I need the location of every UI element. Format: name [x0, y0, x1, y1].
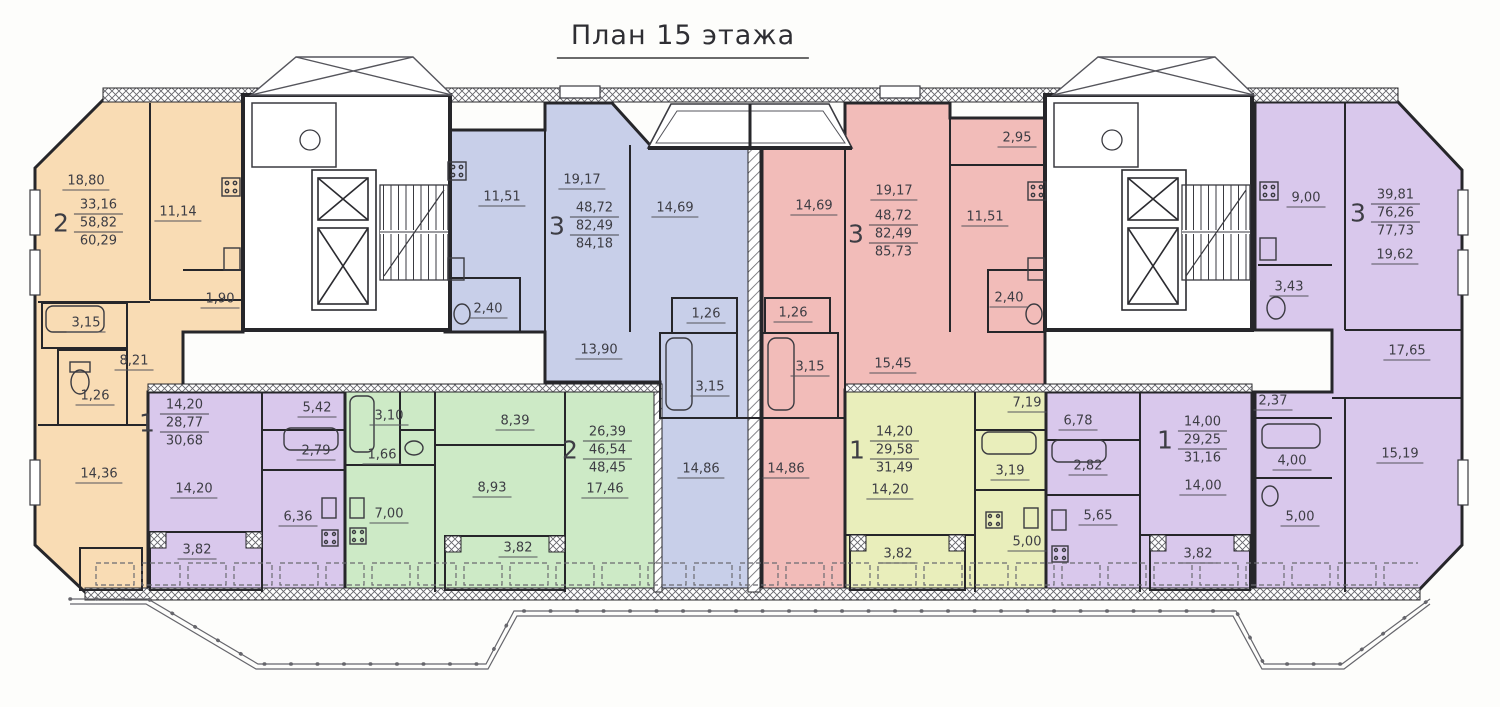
apartment-type: 3 [1350, 201, 1366, 226]
room-area-label: 2,37 [1254, 394, 1293, 411]
room-area-label: 11,51 [961, 210, 1008, 227]
total-area: 48,45 [583, 460, 632, 477]
room-area-label: 3,15 [691, 380, 730, 397]
room-area-label: 3,19 [991, 464, 1030, 481]
living-area: 14,20 [160, 397, 209, 415]
total-area: 77,73 [1371, 223, 1420, 240]
apartment-type: 1 [849, 438, 865, 463]
room-area-label: 19,17 [870, 184, 917, 201]
apartment-area: 46,54 [583, 442, 632, 460]
room-area-label: 18,80 [62, 174, 109, 191]
apartment-summary: 3 39,81 76,26 77,73 [1350, 187, 1420, 240]
room-area-label: 8,93 [473, 481, 512, 498]
living-area: 39,81 [1371, 187, 1420, 205]
total-area: 85,73 [869, 244, 918, 261]
room-area-label: 8,21 [115, 354, 154, 371]
room-area-label: 5,42 [298, 401, 337, 418]
podium-outline [70, 599, 1430, 669]
bottom-glazing-band [92, 558, 1418, 586]
apartment-summary: 2 33,16 58,82 60,29 [53, 197, 123, 250]
apartment-area: 82,49 [570, 218, 619, 236]
room-area-label: 3,15 [67, 316, 106, 333]
total-area: 60,29 [74, 233, 123, 250]
apartment-area: 82,49 [869, 226, 918, 244]
center-bay-balcony [648, 104, 852, 148]
room-area-label: 2,95 [998, 131, 1037, 148]
room-area-label: 3,82 [178, 543, 217, 560]
apartment-summary: 3 48,72 82,49 84,18 [549, 200, 619, 253]
apartment-type: 2 [562, 438, 578, 463]
room-area-label: 3,10 [370, 409, 409, 426]
apartment-summary: 1 14,20 29,58 31,49 [849, 424, 919, 477]
room-area-label: 5,65 [1079, 509, 1118, 526]
room-area-label: 2,40 [990, 291, 1029, 308]
room-area-label: 19,62 [1371, 248, 1418, 265]
stair-core-left [243, 95, 450, 330]
living-area: 26,39 [583, 424, 632, 442]
apartment-type: 2 [53, 211, 69, 236]
floor-plan: План 15 этажа 18,80 2 33,16 58,82 60,29 … [0, 0, 1500, 707]
total-area: 31,16 [1178, 450, 1227, 467]
room-area-label: 7,00 [370, 507, 409, 524]
room-area-label: 2,82 [1069, 459, 1108, 476]
room-area-label: 3,82 [1179, 547, 1218, 564]
total-area: 84,18 [570, 236, 619, 253]
stairs-icon [1182, 185, 1250, 280]
core-roof-left [251, 57, 452, 95]
room-area-label: 5,00 [1008, 535, 1047, 552]
room-area-label: 1,66 [363, 448, 402, 465]
room-area-label: 7,19 [1008, 396, 1047, 413]
room-area-label: 15,45 [869, 357, 916, 374]
room-area-label: 8,39 [496, 414, 535, 431]
floor-plan-canvas [0, 0, 1500, 707]
room-area-label: 3,43 [1270, 280, 1309, 297]
living-area: 48,72 [570, 200, 619, 218]
apartment-area: 29,58 [870, 442, 919, 460]
room-area-label: 1,26 [687, 307, 726, 324]
apartment-type: 1 [1157, 428, 1173, 453]
apartment-summary: 1 14,00 29,25 31,16 [1157, 414, 1227, 467]
room-area-label: 14,86 [762, 462, 809, 479]
room-area-label: 14,20 [170, 482, 217, 499]
apartment-type: 1 [139, 411, 155, 436]
room-area-label: 3,15 [791, 360, 830, 377]
room-area-label: 14,69 [790, 199, 837, 216]
living-area: 48,72 [869, 208, 918, 226]
total-area: 30,68 [160, 433, 209, 450]
room-area-label: 14,69 [651, 201, 698, 218]
room-area-label: 14,20 [866, 483, 913, 500]
room-area-label: 11,51 [478, 190, 525, 207]
room-area-label: 5,00 [1281, 510, 1320, 527]
room-area-label: 2,40 [469, 302, 508, 319]
room-area-label: 3,82 [879, 547, 918, 564]
room-area-label: 1,26 [774, 306, 813, 323]
room-area-label: 15,19 [1376, 447, 1423, 464]
room-area-label: 1,90 [201, 292, 240, 309]
apartment-type: 3 [549, 214, 565, 239]
room-area-label: 13,90 [575, 343, 622, 360]
room-area-label: 6,36 [279, 510, 318, 527]
room-area-label: 11,14 [154, 205, 201, 222]
apartment-area: 29,25 [1178, 432, 1227, 450]
room-area-label: 2,79 [297, 444, 336, 461]
room-area-label: 4,00 [1273, 454, 1312, 471]
apartment-area: 76,26 [1371, 205, 1420, 223]
stair-core-right [1045, 95, 1252, 330]
apartment-summary: 1 14,20 28,77 30,68 [139, 397, 209, 450]
room-area-label: 9,00 [1287, 191, 1326, 208]
apartment-summary: 2 26,39 46,54 48,45 [562, 424, 632, 477]
room-area-label: 14,86 [677, 462, 724, 479]
page-title: План 15 этажа [557, 20, 809, 59]
room-area-label: 14,00 [1179, 479, 1226, 496]
apartment-area: 28,77 [160, 415, 209, 433]
room-area-label: 17,46 [581, 482, 628, 499]
apartment-summary: 3 48,72 82,49 85,73 [848, 208, 918, 261]
total-area: 31,49 [870, 460, 919, 477]
room-area-label: 1,26 [76, 389, 115, 406]
living-area: 14,00 [1178, 414, 1227, 432]
room-area-label: 17,65 [1383, 344, 1430, 361]
apartment-type: 3 [848, 222, 864, 247]
room-area-label: 14,36 [75, 467, 122, 484]
room-area-label: 19,17 [558, 173, 605, 190]
living-area: 33,16 [74, 197, 123, 215]
core-roof-right [1053, 57, 1254, 95]
apartment-area: 58,82 [74, 215, 123, 233]
room-area-label: 6,78 [1059, 414, 1098, 431]
stairs-icon [380, 185, 448, 280]
room-area-label: 3,82 [499, 541, 538, 558]
living-area: 14,20 [870, 424, 919, 442]
